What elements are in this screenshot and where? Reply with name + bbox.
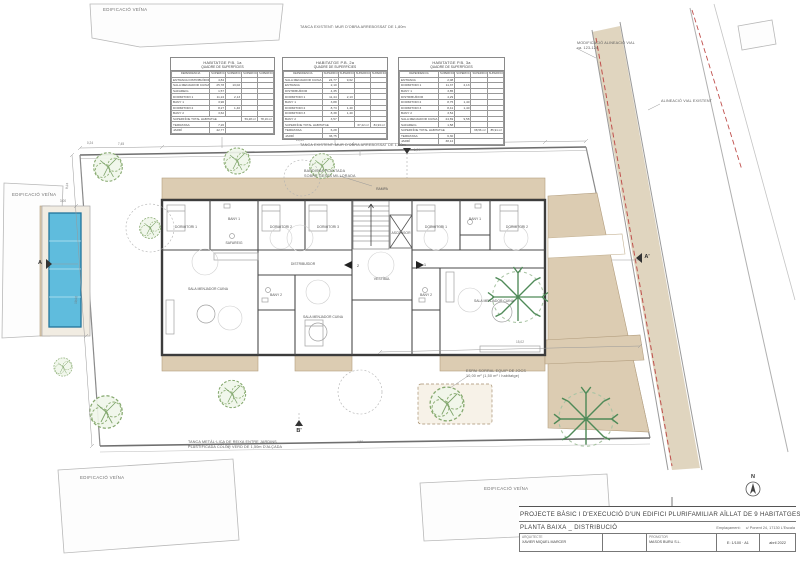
room-name: ENTRADA DISTRIBUÏDOR <box>172 77 210 83</box>
site-address: Emplaçament: c/ Ponent 24, 17130 L'Escal… <box>716 526 795 530</box>
surface-table: DEPENDÈNCIASUPERFÍCIE ÚTIL (m²)SUPERFÍCI… <box>283 71 387 139</box>
annotation-line: EDIFICACIÓ VEÏNA <box>12 192 56 198</box>
surface-table: DEPENDÈNCIASUPERFÍCIE ÚTIL (m²)SUPERFÍCI… <box>399 71 504 145</box>
label-edificacio-veina-3: EDIFICACIÓ VEÏNA <box>80 475 124 481</box>
annotation-line: TANCA EXISTENT: MUR D'OBRA ARREBOSSAT DE… <box>300 25 406 30</box>
room-label: DORMITORI 3 <box>317 225 339 229</box>
annotation-line: 10,00 m² (1,50 m² / habitatge) <box>466 374 526 379</box>
label-edificacio-veina-2: EDIFICACIÓ VEÏNA <box>12 192 56 198</box>
annotation-line: ALINEACIÓ VIAL EXISTENT <box>661 99 712 104</box>
dimension-label: 4,50 <box>357 440 363 444</box>
room-label: SALA MENJADOR CUINA <box>303 315 344 319</box>
label-edificacio-veina-1: EDIFICACIÓ VEÏNA <box>103 7 147 13</box>
extra-label: JARDÍ <box>284 133 323 139</box>
dimension-label: 19,02 <box>74 296 79 304</box>
title-block: PROJECTE BÀSIC I D'EXECUCIÓ D'UN EDIFICI… <box>519 506 796 552</box>
stair-core <box>353 201 389 249</box>
extra-row: JARDÍ38,12 <box>400 139 504 145</box>
section-marker-label: N <box>751 474 755 480</box>
extra-value: 36,75 <box>322 133 338 139</box>
annotation-line: EDIFICACIÓ VEÏNA <box>103 7 147 13</box>
dimension-label: 7,45 <box>118 142 124 146</box>
surface-table-hab-1: HABITATGE P.B. 1aQUADRE DE SUPERFÍCIESDE… <box>170 57 275 135</box>
building-footprint <box>162 200 545 355</box>
room-label: DORMITORI 2 <box>506 225 528 229</box>
annotation-line: EDIFICACIÓ VEÏNA <box>484 486 528 492</box>
surface-table-hab-3: HABITATGE P.B. 3aQUADRE DE SUPERFÍCIESDE… <box>398 57 505 146</box>
section-marker-label: B' <box>296 428 302 434</box>
room-label: BANY 2 <box>420 293 432 297</box>
annotation-line: EDIFICACIÓ VEÏNA <box>80 475 124 481</box>
empty-cell <box>338 133 386 139</box>
room-label: SALA MENJADOR CUINA <box>474 299 515 303</box>
scale-cell: E: 1/100 · A1 <box>717 534 761 551</box>
annotation-line: PLASTIFICADA COLOR VERD DE 1,50m D'ALÇAD… <box>188 445 282 450</box>
extra-value: 42,77 <box>210 127 226 133</box>
label-bardissa: BARDISSA PLANTADASOBRE GESPA MILLORADA <box>304 169 356 179</box>
entry-number: 1 <box>424 263 426 267</box>
annotation-line: ca. 123-124 <box>577 46 635 51</box>
room-name: SALA MENJADOR CUINA <box>172 83 210 89</box>
site-address-value: c/ Ponent 24, 17130 L'Escala <box>746 526 795 530</box>
architect-name: XAVIER MIQUEL MARCER <box>522 540 600 544</box>
extra-row: JARDÍ42,77 <box>172 127 274 133</box>
room-label: BANY 2 <box>270 293 282 297</box>
architect-label: ARQUITECTE <box>522 535 600 539</box>
label-alineacio-vial: ALINEACIÓ VIAL EXISTENT <box>661 99 712 104</box>
dimension-label: 15,02 <box>516 340 524 344</box>
project-title: PROJECTE BÀSIC I D'EXECUCIÓ D'UN EDIFICI… <box>520 511 800 518</box>
dimension-label: 8,24 <box>65 182 69 189</box>
empty-cell <box>455 139 504 145</box>
sheet-subtitle: PLANTA BAIXA _ DISTRIBUCIÓ <box>520 525 617 531</box>
room-label: ASCENSOR <box>391 231 411 235</box>
swimming-pool <box>42 206 90 336</box>
dimension-label: 3,00 <box>60 199 66 203</box>
promoter-name: MASOS BURU S.L. <box>649 540 713 544</box>
empty-cell-1 <box>603 534 647 551</box>
dimension-label: 0,24 <box>87 141 93 145</box>
label-edificacio-veina-4: EDIFICACIÓ VEÏNA <box>484 486 528 492</box>
room-label: SAFAREIG <box>226 241 243 245</box>
annotation-line: SOBRE GESPA MILLORADA <box>304 174 356 179</box>
room-label: DORMITORI 2 <box>270 225 292 229</box>
label-sorral: ESPAI SORRAL EQUIP DE JOCS10,00 m² (1,50… <box>466 369 526 379</box>
promoter-label: PROMOTOR <box>649 535 713 539</box>
drawing-sheet: DORMITORI 1BANY 1SAFAREIGSALA MENJADOR C… <box>0 0 800 566</box>
section-marker-label: A <box>38 260 42 266</box>
section-marker-label: A' <box>644 254 650 260</box>
total-util: 68,56 m² <box>471 127 487 133</box>
promoter-cell: PROMOTOR MASOS BURU S.L. <box>647 534 716 551</box>
site-address-label: Emplaçament: <box>716 526 740 530</box>
room-label: SALA MENJADOR CUINA <box>188 287 229 291</box>
label-modificacio-alineacio: MODIFICACIÓ ALINEACIÓ VIALca. 123-124 <box>577 41 635 51</box>
surface-table: DEPENDÈNCIASUPERFÍCIE ÚTIL (m²)SUPERFÍCI… <box>171 71 274 134</box>
entry-number: 2 <box>357 264 359 268</box>
room-label: DORMITORI 1 <box>175 225 197 229</box>
room-name: SALA MENJADOR CUINA <box>400 116 439 122</box>
surface-table-hab-2: HABITATGE P.B. 2aQUADRE DE SUPERFÍCIESDE… <box>282 57 388 140</box>
dimension-label: 1,74 <box>414 148 420 152</box>
empty-cell <box>226 127 274 133</box>
room-label: BANY 1 <box>228 217 240 221</box>
architect-cell: ARQUITECTE XAVIER MIQUEL MARCER <box>520 534 603 551</box>
room-label: VESTÍBUL <box>374 277 391 281</box>
extra-value: 38,12 <box>438 139 454 145</box>
room-name: SALA MENJADOR CUINA <box>284 77 323 83</box>
label-tanca-existent-2: TANCA EXISTENT: MUR D'OBRA ARREBOSSAT DE… <box>300 143 406 148</box>
total-util: 67,22 m² <box>354 122 370 128</box>
room-label: BANY 1 <box>469 217 481 221</box>
label-tanca-metallica: TANCA METÀL·LICA DE REIXA ENTRE JARDINSP… <box>188 440 282 450</box>
room-label: DORMITORI 1 <box>425 225 447 229</box>
label-tanca-existent-1: TANCA EXISTENT: MUR D'OBRA ARREBOSSAT DE… <box>300 25 406 30</box>
annotation-line: TANCA EXISTENT: MUR D'OBRA ARREBOSSAT DE… <box>300 143 406 148</box>
north-arrow-icon <box>746 482 760 496</box>
date-cell: abril 2022 <box>760 534 795 551</box>
extra-row: JARDÍ36,75 <box>284 133 387 139</box>
extra-label: JARDÍ <box>172 127 210 133</box>
room-label: RAMPA <box>376 187 389 191</box>
room-label: DISTRIBUÏDOR <box>291 262 316 266</box>
